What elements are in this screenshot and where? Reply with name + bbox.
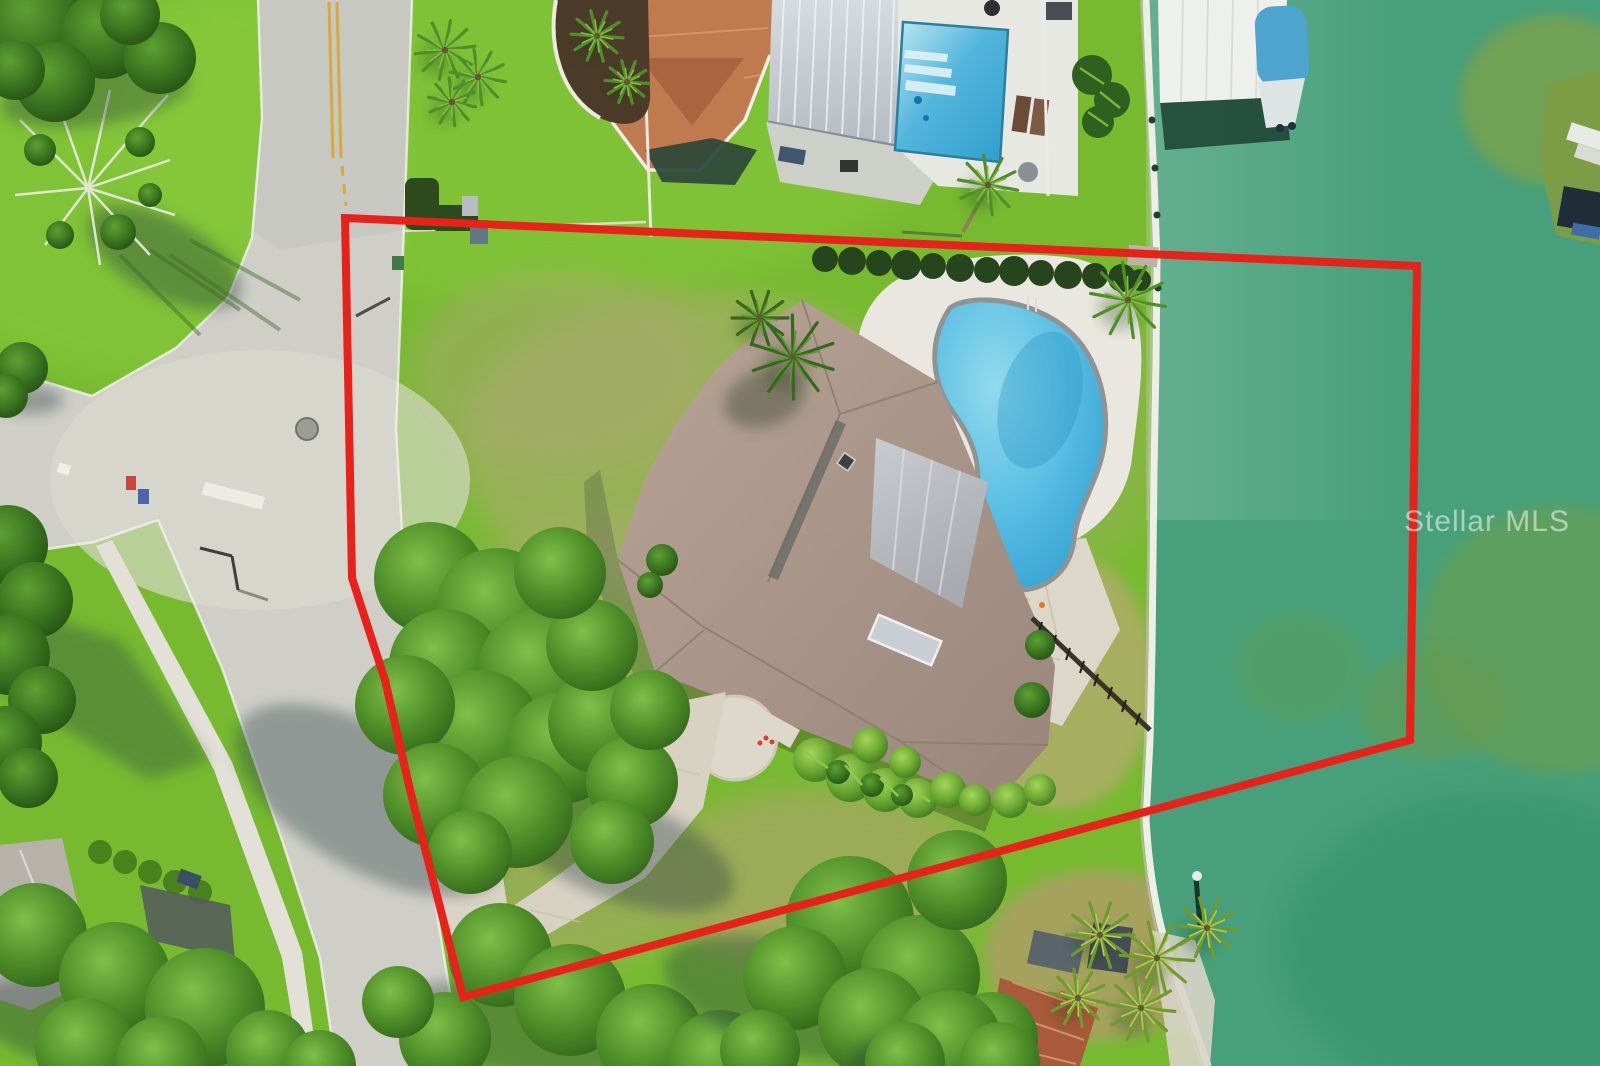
palm-crown-center (1097, 932, 1103, 938)
shrub (1025, 630, 1055, 660)
palm-crown-center (757, 315, 763, 321)
patio-equipment (840, 160, 858, 172)
palm-crown-center (1154, 955, 1160, 961)
bird-on-piling (1192, 871, 1202, 881)
aerial-photo: Stellar MLS (0, 0, 1600, 1066)
grill (984, 0, 1000, 16)
tree-canopy (362, 966, 434, 1038)
palm-frond-highlight (1127, 276, 1128, 300)
trash-can (462, 196, 478, 216)
palm-crown-center (1125, 297, 1131, 303)
palm-frond-highlight (1128, 300, 1129, 324)
tree-canopy (907, 830, 1007, 930)
shrub (1014, 682, 1050, 718)
patio-table (1018, 162, 1038, 182)
palm-crown-center (985, 182, 991, 188)
deck-item (1039, 602, 1045, 608)
palm-crown-center (1138, 1005, 1144, 1011)
palm-crown-center (1204, 925, 1210, 931)
palm-crown-center (1075, 995, 1081, 1001)
outboard-motor (1276, 124, 1284, 132)
palm-crown-center (449, 99, 455, 105)
shrub (637, 572, 663, 598)
palm-crown-center (442, 47, 448, 53)
palm-crown-center (594, 33, 600, 39)
palm-crown-center (790, 354, 796, 360)
neighbor-metal-roof (768, 0, 906, 146)
pool-toy (914, 96, 922, 104)
boat-canopy (1254, 5, 1310, 88)
tree-canopy (610, 670, 690, 750)
stellar-mls-watermark: Stellar MLS (1404, 505, 1570, 538)
utility-box (392, 256, 404, 270)
tree-canopy (0, 748, 58, 808)
aerial-photo-canvas: Stellar MLS (0, 0, 1600, 1066)
tree-canopy (355, 655, 455, 755)
tree-canopy (428, 810, 512, 894)
deck-box (1046, 2, 1072, 20)
palm-crown-center (475, 74, 481, 80)
tree-canopy (514, 527, 606, 619)
red-mailbox (126, 476, 136, 490)
palm-crown-center (624, 79, 630, 85)
pool-toy (923, 115, 929, 121)
manhole-cover (296, 418, 318, 440)
outboard-motor (1288, 122, 1296, 130)
blue-mailbox (138, 489, 149, 504)
tree-canopy (570, 800, 654, 884)
boat-dock-north (1158, 0, 1310, 150)
shrub (646, 544, 678, 576)
